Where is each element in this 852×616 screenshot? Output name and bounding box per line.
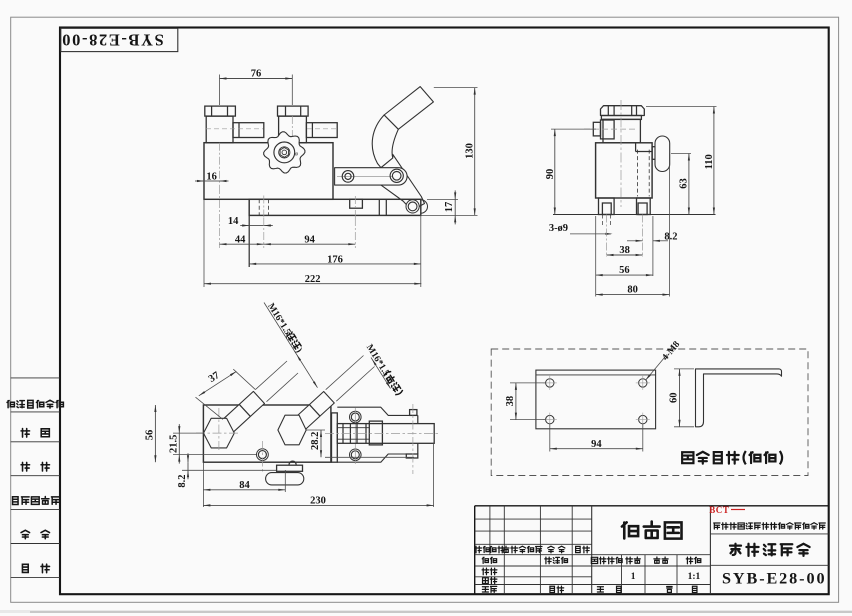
svg-text:SYB-E28-00: SYB-E28-00 — [61, 30, 164, 49]
svg-text:17: 17 — [444, 202, 455, 213]
svg-text:84: 84 — [239, 480, 250, 491]
svg-text:56: 56 — [619, 265, 630, 276]
svg-text:110: 110 — [704, 154, 715, 169]
svg-text:SYB-E28-00: SYB-E28-00 — [722, 569, 826, 587]
svg-text:130: 130 — [465, 143, 476, 159]
svg-text:94: 94 — [591, 439, 602, 450]
svg-text:1: 1 — [631, 572, 636, 582]
svg-text:28.2: 28.2 — [310, 432, 321, 450]
svg-text:38: 38 — [505, 396, 516, 407]
svg-text:222: 222 — [305, 274, 321, 285]
svg-text:60: 60 — [669, 393, 680, 404]
svg-text:230: 230 — [310, 496, 326, 507]
svg-text:38: 38 — [619, 245, 630, 256]
svg-text:44: 44 — [235, 235, 246, 246]
svg-text:16: 16 — [206, 172, 217, 183]
svg-text:76: 76 — [251, 68, 261, 79]
svg-text:90: 90 — [545, 169, 556, 180]
svg-text:BCT: BCT — [709, 505, 729, 515]
svg-text:14: 14 — [228, 216, 239, 227]
svg-text:3-ø9: 3-ø9 — [549, 223, 568, 234]
svg-text:8.2: 8.2 — [177, 474, 188, 487]
svg-text:1:1: 1:1 — [688, 572, 701, 582]
svg-text:21.5: 21.5 — [168, 435, 179, 453]
svg-text:63: 63 — [679, 178, 690, 189]
svg-text:56: 56 — [144, 430, 155, 441]
svg-text:94: 94 — [304, 235, 315, 246]
svg-text:ø: ø — [295, 152, 298, 158]
svg-text:176: 176 — [327, 254, 343, 265]
svg-text:80: 80 — [627, 285, 638, 296]
